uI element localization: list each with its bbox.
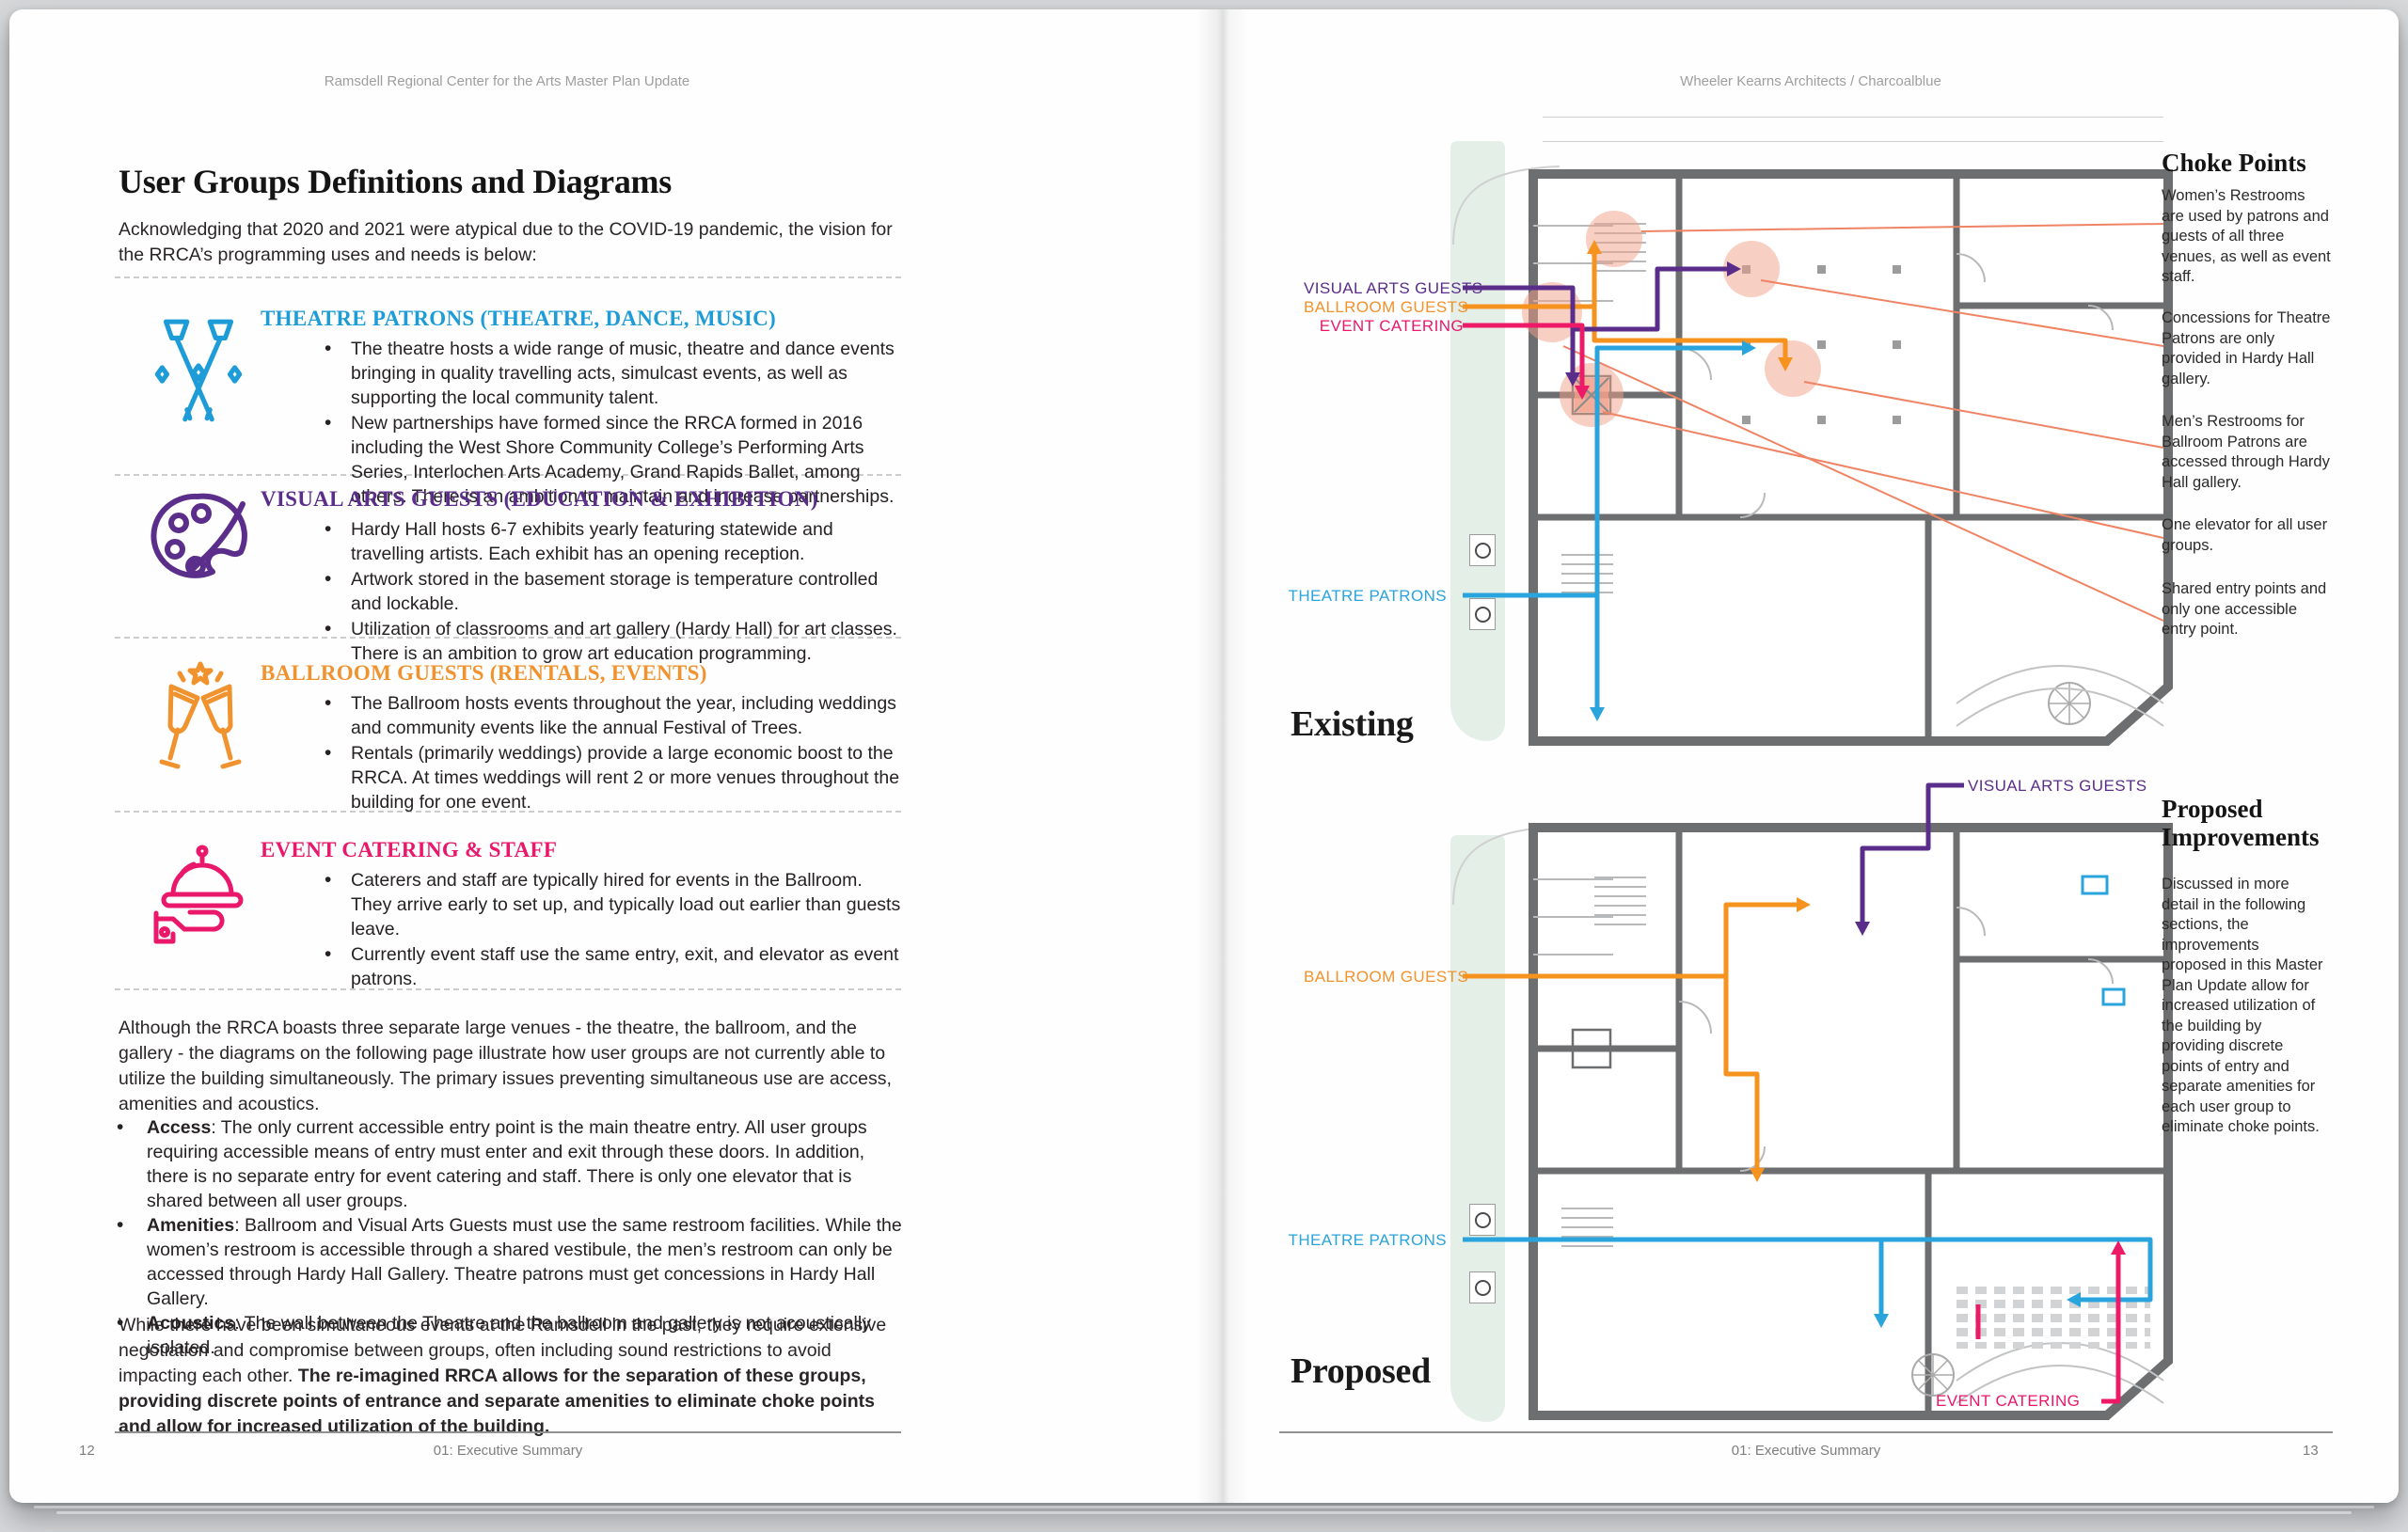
user-group-theatre-patrons: THEATRE PATRONS (THEATRE, DANCE, MUSIC) … [261,307,901,510]
site-fixture [1469,598,1496,630]
palette-icon [149,489,252,600]
user-group-ballroom-guests: BALLROOM GUESTS (RENTALS, EVENTS) The Ba… [261,661,901,815]
site-fixture [1469,534,1496,566]
label-event-catering-proposed: EVENT CATERING [1936,1392,2080,1411]
group-bullet: The Ballroom hosts events throughout the… [261,691,901,740]
proposed-floor-plan [1505,764,2173,1441]
label-theatre-patrons-proposed: THEATRE PATRONS [1287,1231,1447,1250]
intro-paragraph: Acknowledging that 2020 and 2021 were at… [119,217,905,268]
group-heading: VISUAL ARTS GUESTS (EDUCATION & EXHIBITI… [261,487,901,512]
footer-rule-right [1279,1431,2333,1433]
group-bullet: Artwork stored in the basement storage i… [261,567,901,616]
footer-section-right: 01: Executive Summary [1279,1443,2333,1459]
issue-amenities: Amenities: Ballroom and Visual Arts Gues… [119,1213,907,1311]
group-heading: BALLROOM GUESTS (RENTALS, EVENTS) [261,661,901,686]
summary-paragraph: Although the RRCA boasts three separate … [119,1016,907,1117]
footer-rule-left [115,1431,901,1433]
existing-title: Existing [1291,703,1414,745]
user-group-event-catering: EVENT CATERING & STAFF Caterers and staf… [261,838,901,992]
page-title: User Groups Definitions and Diagrams [119,162,672,201]
choke-note: One elevator for all user groups. [2162,515,2331,556]
choke-points-heading: Choke Points [2162,149,2306,177]
closing-paragraph: While there have been simultaneous event… [119,1313,907,1440]
issue-access: Access: The only current accessible entr… [119,1115,907,1213]
champagne-toast-icon [149,658,252,784]
group-bullet: Caterers and staff are typically hired f… [261,868,901,941]
section-divider [115,276,901,278]
site-fixture [1469,1271,1496,1303]
label-ballroom-guests-proposed: BALLROOM GUESTS [1304,968,1464,987]
choke-note: Concessions for Theatre Patrons are only… [2162,308,2331,389]
page-number-left: 12 [79,1443,95,1459]
footer-section-left: 01: Executive Summary [115,1443,901,1459]
user-group-visual-arts-guests: VISUAL ARTS GUESTS (EDUCATION & EXHIBITI… [261,487,901,667]
group-bullet: Rentals (primarily weddings) provide a l… [261,741,901,814]
label-visual-arts-guests-proposed: VISUAL ARTS GUESTS [1968,777,2147,796]
landscape-strip-proposed [1450,835,1505,1422]
running-header-left: Ramsdell Regional Center for the Arts Ma… [115,73,899,89]
label-visual-arts-guests-existing: VISUAL ARTS GUESTS [1304,279,1464,298]
page-stack-edge [34,1506,2374,1508]
proposed-title: Proposed [1291,1350,1431,1392]
site-fixture [1469,1204,1496,1236]
label-theatre-patrons-existing: THEATRE PATRONS [1287,587,1447,606]
group-heading: THEATRE PATRONS (THEATRE, DANCE, MUSIC) [261,307,901,331]
catering-cloche-icon [149,840,254,955]
group-bullet: Hardy Hall hosts 6-7 exhibits yearly fea… [261,517,901,566]
existing-floor-plan [1505,113,2173,781]
label-ballroom-guests-existing: BALLROOM GUESTS [1304,298,1464,317]
running-header-right: Wheeler Kearns Architects / Charcoalblue [1599,73,2022,89]
spotlights-icon [149,314,248,433]
proposed-improvements-heading: Proposed Improvements [2162,795,2319,851]
choke-note: Men’s Restrooms for Ballroom Patrons are… [2162,412,2331,493]
group-bullet: Currently event staff use the same entry… [261,942,901,991]
page-number-right: 13 [2303,1443,2319,1459]
page-stack-edge [56,1511,2352,1514]
theatre-seating [1955,1287,2150,1349]
proposed-improvements-body: Discussed in more detail in the followin… [2162,875,2326,1138]
choke-note: Women’s Restrooms are used by patrons an… [2162,186,2331,288]
label-event-catering-existing: EVENT CATERING [1304,317,1464,336]
choke-note: Shared entry points and only one accessi… [2162,579,2331,640]
group-bullet: The theatre hosts a wide range of music,… [261,337,901,410]
landscape-strip-existing [1450,141,1505,741]
group-bullet: Utilization of classrooms and art galler… [261,617,901,666]
document-spread: { "colors": { "blue": "#29a4dd", "purple… [0,0,2408,1532]
group-heading: EVENT CATERING & STAFF [261,838,901,862]
page-gutter [1196,9,1249,1503]
